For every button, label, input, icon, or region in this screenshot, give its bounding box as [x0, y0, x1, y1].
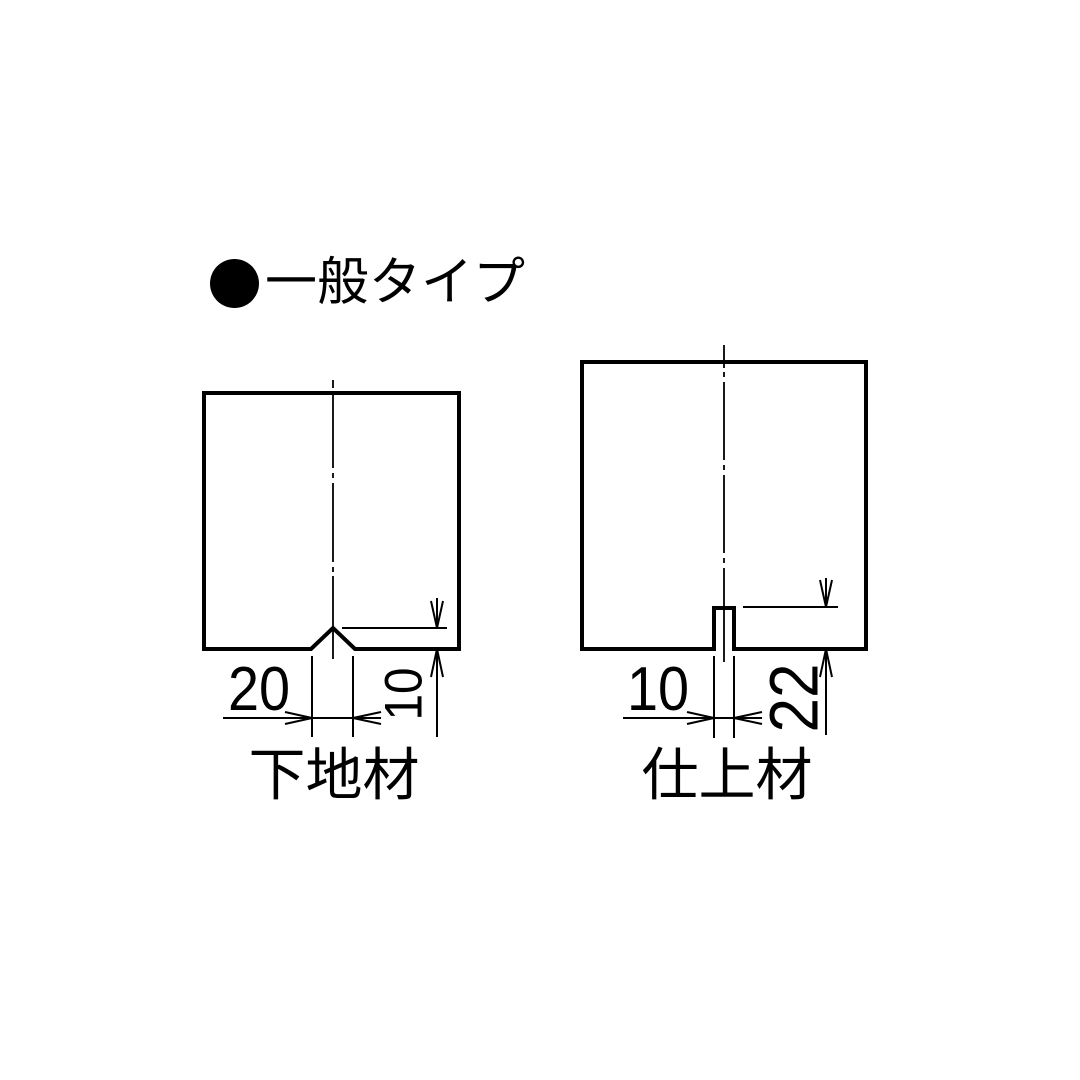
figure-label-finish-material: 仕上材	[642, 748, 813, 805]
drawing-canvas: 一般タイプ	[0, 0, 1080, 1080]
base-material-outline	[204, 393, 459, 649]
dim-value-notch-width: 20	[228, 659, 290, 721]
dim-value-slot-width: 10	[627, 659, 689, 721]
dim-value-notch-depth: 10	[378, 667, 431, 720]
figure-label-base-material: 下地材	[249, 748, 420, 805]
dim-value-slot-depth: 22	[760, 663, 829, 732]
diagram-linework	[0, 0, 1080, 1080]
